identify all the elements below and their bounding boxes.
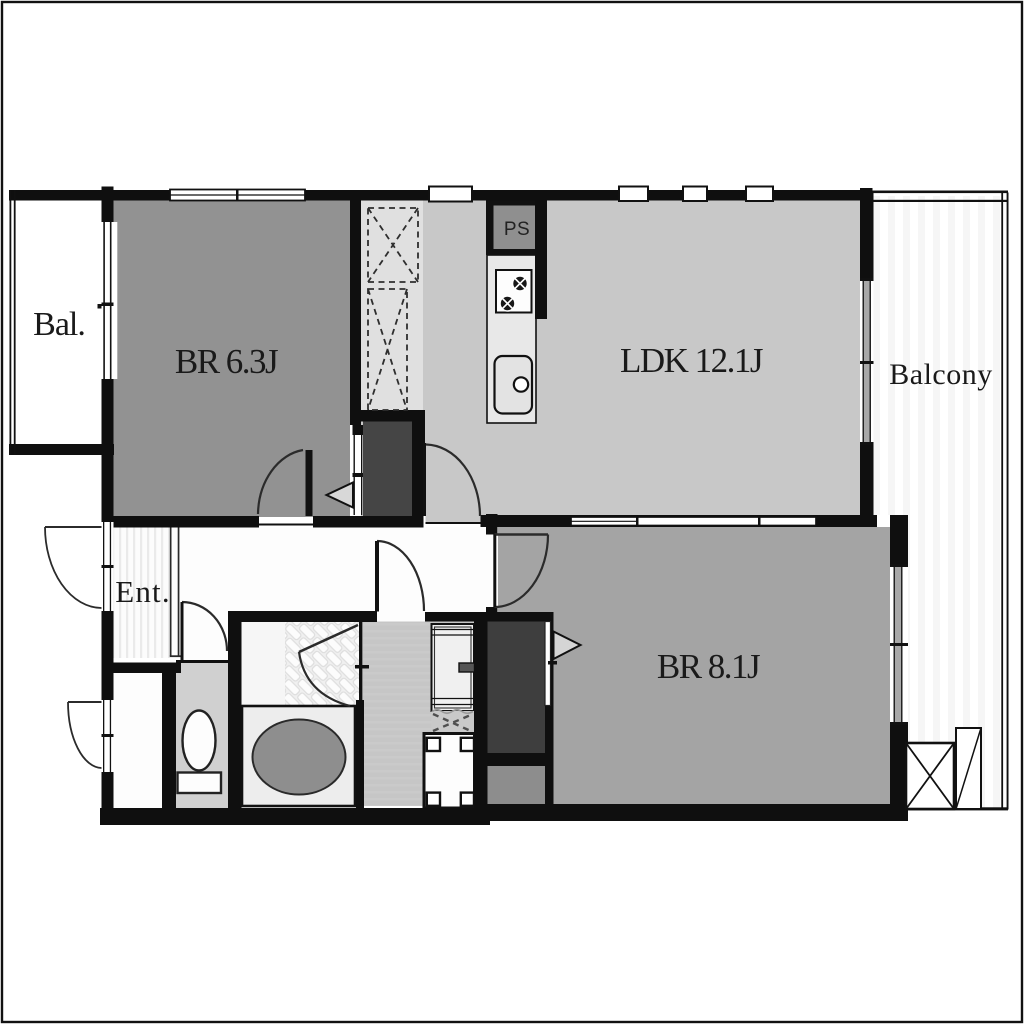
svg-text:BR 6.3J: BR 6.3J [175, 342, 278, 381]
svg-text:Bal.: Bal. [33, 306, 85, 343]
svg-text:PS: PS [504, 219, 530, 240]
svg-text:Ent.: Ent. [115, 574, 171, 609]
svg-text:Balcony: Balcony [889, 358, 992, 391]
svg-text:LDK 12.1J: LDK 12.1J [620, 341, 763, 380]
svg-text:BR 8.1J: BR 8.1J [657, 647, 760, 686]
